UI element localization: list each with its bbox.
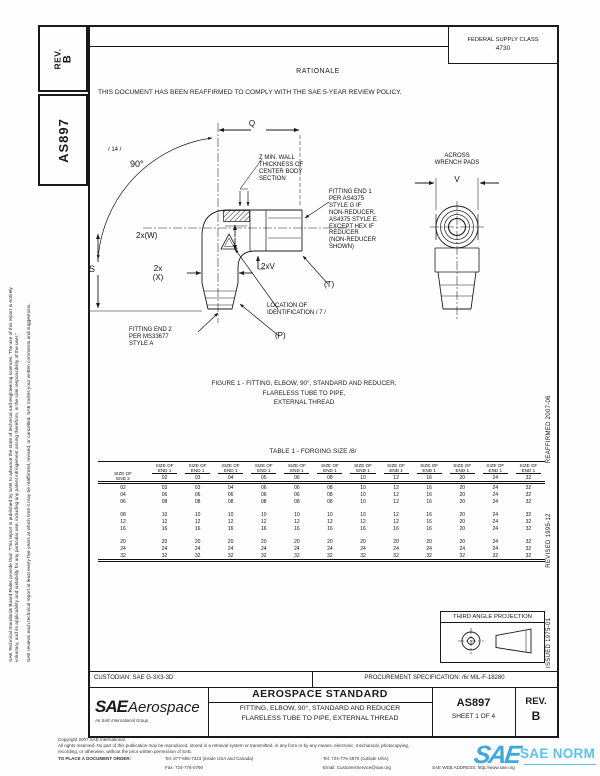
table-col-header: SIZE OFEND 112 — [380, 462, 413, 483]
forging-size-cell: 24 — [479, 545, 512, 552]
titleblock-rule-top — [88, 671, 559, 672]
forging-size-cell: 20 — [446, 498, 479, 505]
forging-size-cell: 24 — [181, 545, 214, 552]
forging-size-cell: 06 — [148, 491, 181, 498]
forging-size-cell: 24 — [148, 545, 181, 552]
forging-size-cell: 10 — [247, 511, 280, 518]
forging-size-cell: 32 — [512, 511, 545, 518]
forging-size-cell: 32 — [181, 552, 214, 561]
forging-size-cell: 08 — [214, 498, 247, 505]
forging-size-cell: 32 — [512, 552, 545, 561]
reaffirmed-date: REAFFIRMED 2007-06 — [546, 395, 552, 463]
forging-size-cell: 06 — [214, 491, 247, 498]
logo-tagline: An SAE International Group — [95, 718, 207, 723]
forging-size-cell: 12 — [380, 491, 413, 498]
forging-size-cell: 24 — [479, 483, 512, 492]
forging-size-cell: 24 — [479, 491, 512, 498]
dim-p-label: (P) — [275, 331, 286, 340]
forging-size-cell: 06 — [247, 491, 280, 498]
titleblock-rev-label: REV. — [515, 696, 557, 707]
forging-size-cell: 12 — [148, 518, 181, 525]
watermark-sae-logo: SAE — [472, 741, 521, 770]
titleblock-rev-value: B — [515, 709, 557, 723]
thread-lines — [204, 291, 236, 305]
rationale-heading: RATIONALE — [88, 68, 548, 75]
forging-size-cell: 32 — [512, 498, 545, 505]
custodian-text: CUSTODIAN: SAE G-3X3-3D — [94, 675, 173, 681]
forging-size-cell: 32 — [479, 552, 512, 561]
document-title-line2: FLARELESS TUBE TO PIPE, EXTERNAL THREAD — [208, 714, 432, 724]
forging-size-cell: 10 — [346, 498, 379, 505]
row-header-end2: 02 — [98, 483, 148, 492]
table-col-header: SIZE OFEND 105 — [247, 462, 280, 483]
dim-2xw-label: 2x(W) — [136, 231, 157, 240]
identification-note: LOCATION OF IDENTIFICATION / 7 / — [267, 303, 326, 317]
rights-line-1: All rights reserved. No part of this pub… — [58, 743, 409, 748]
forging-size-cell: 20 — [214, 538, 247, 545]
forging-size-cell: 16 — [413, 525, 446, 532]
forging-size-cell: 10 — [181, 511, 214, 518]
forging-size-cell: 08 — [313, 483, 346, 492]
row-header-end2: 04 — [98, 491, 148, 498]
sae-aerospace-logo: SAEAerospace An SAE International Group — [95, 697, 207, 723]
forging-size-cell: 10 — [148, 511, 181, 518]
forging-size-cell: 10 — [346, 491, 379, 498]
projection-label: THIRD ANGLE PROJECTION — [441, 612, 544, 623]
forging-table: SIZE OFEND 2SIZE OFEND 102SIZE OFEND 103… — [98, 461, 545, 562]
row-header-end2: 08 — [98, 511, 148, 518]
logo-aerospace-text: Aerospace — [128, 699, 200, 716]
forging-size-cell: 32 — [380, 552, 413, 561]
forging-size-cell: 16 — [313, 525, 346, 532]
forging-size-cell: 24 — [479, 525, 512, 532]
forging-size-cell: 24 — [479, 518, 512, 525]
forging-size-cell: 12 — [380, 518, 413, 525]
end-view — [415, 178, 499, 319]
email-address: Email: CustomerService@sae.org — [323, 765, 391, 770]
forging-size-cell: 03 — [181, 483, 214, 492]
forging-size-cell: 32 — [512, 545, 545, 552]
forging-size-cell: 16 — [247, 525, 280, 532]
forging-size-cell: 20 — [380, 538, 413, 545]
doc-number-box: AS897 — [38, 94, 88, 186]
table-col-header: SIZE OFEND 108 — [313, 462, 346, 483]
forging-size-cell: 06 — [247, 483, 280, 492]
row-header-end2: 32 — [98, 552, 148, 561]
forging-size-cell: 16 — [346, 525, 379, 532]
forging-size-cell: 20 — [181, 538, 214, 545]
issued-date: ISSUED 1975-01 — [546, 618, 552, 668]
table-col-header: SIZE OFEND 120 — [446, 462, 479, 483]
row-header-end2: 16 — [98, 525, 148, 532]
row-header-end2: 12 — [98, 518, 148, 525]
forging-size-cell: 16 — [280, 525, 313, 532]
forging-size-cell: 32 — [512, 491, 545, 498]
forging-size-cell: 32 — [512, 483, 545, 492]
forging-size-cell: 20 — [446, 483, 479, 492]
angle-90-label: 90° — [130, 159, 144, 169]
forging-size-cell: 10 — [346, 483, 379, 492]
forging-size-cell: 16 — [380, 525, 413, 532]
forging-size-cell: 12 — [280, 518, 313, 525]
table-row: 16161616161616161616202432 — [98, 525, 545, 532]
forging-size-cell: 20 — [446, 511, 479, 518]
procurement-spec-text: PROCUREMENT SPECIFICATION: /6/ MIL-F-182… — [312, 675, 557, 681]
figure-1-drawing — [88, 105, 548, 405]
forging-size-cell: 06 — [280, 483, 313, 492]
titleblock-doc-number: AS897 — [432, 697, 515, 709]
forging-table-body: 0203030406060810121620243204060606060608… — [98, 483, 545, 561]
document-page: SAE Technical Standards Board Rules prov… — [0, 0, 600, 776]
table-col-header: SIZE OFEND 106 — [280, 462, 313, 483]
forging-size-cell: 20 — [280, 538, 313, 545]
watermark-sae-norm: SAE NORM — [520, 746, 595, 761]
federal-supply-class-box: FEDERAL SUPPLY CLASS 4730 — [448, 25, 557, 64]
dim-2xv-label: 2xV — [261, 262, 275, 271]
document-title: FITTING, ELBOW, 90°, STANDARD AND REDUCE… — [208, 704, 432, 723]
forging-size-cell: 16 — [413, 483, 446, 492]
forging-size-cell: 16 — [148, 525, 181, 532]
forging-size-cell: 16 — [413, 518, 446, 525]
forging-size-cell: 08 — [148, 498, 181, 505]
header-rule — [88, 46, 448, 47]
wrench-pad-lines — [250, 210, 266, 251]
elbow-outer-profile — [202, 210, 302, 283]
across-wrench-pads-label: ACROSS WRENCH PADS — [417, 153, 497, 167]
legal-disclaimer-line-3: SAE reviews each technical report at lea… — [27, 162, 32, 662]
row-header-end2: 24 — [98, 545, 148, 552]
document-title-line1: FITTING, ELBOW, 90°, STANDARD AND REDUCE… — [208, 704, 432, 714]
fitting-end2-note: FITTING END 2 PER MS33677 STYLE A — [129, 327, 172, 348]
fax-number: Fax: 724-776-0790 — [165, 765, 203, 770]
forging-size-cell: 12 — [247, 518, 280, 525]
row-header-end2: 06 — [98, 498, 148, 505]
flag-note-14: / 14 / — [108, 147, 121, 154]
table-col-header: SIZE OFEND 116 — [413, 462, 446, 483]
forging-size-cell: 24 — [380, 545, 413, 552]
table-row: 06080808080808101216202432 — [98, 498, 545, 505]
forging-size-cell: 12 — [214, 518, 247, 525]
titleblock-v2 — [432, 687, 433, 736]
rationale-text: THIS DOCUMENT HAS BEEN REAFFIRMED TO COM… — [98, 89, 558, 96]
forging-size-cell: 16 — [181, 525, 214, 532]
forging-size-cell: 06 — [280, 491, 313, 498]
copyright-line: Copyright 2007 SAE International — [58, 737, 125, 742]
forging-size-cell: 32 — [148, 552, 181, 561]
forging-size-cell: 16 — [413, 511, 446, 518]
dim-s-label: S — [89, 264, 95, 274]
forging-size-cell: 08 — [313, 498, 346, 505]
forging-size-cell: 24 — [479, 538, 512, 545]
forging-size-cell: 12 — [380, 511, 413, 518]
table-row: 12121212121212121216202432 — [98, 518, 545, 525]
forging-size-cell: 08 — [280, 498, 313, 505]
forging-size-cell: 20 — [247, 538, 280, 545]
forging-size-cell: 16 — [413, 498, 446, 505]
forging-table-head: SIZE OFEND 2SIZE OFEND 102SIZE OFEND 103… — [98, 462, 545, 483]
forging-size-cell: 32 — [280, 552, 313, 561]
forging-size-cell: 24 — [413, 545, 446, 552]
forging-size-cell: 32 — [512, 538, 545, 545]
forging-size-cell: 12 — [380, 483, 413, 492]
projection-symbol — [441, 623, 543, 659]
forging-size-cell: 20 — [446, 518, 479, 525]
forging-size-cell: 12 — [380, 498, 413, 505]
rights-line-2: recording, or otherwise, without the pri… — [58, 749, 192, 754]
forging-size-cell: 12 — [313, 518, 346, 525]
forging-size-cell: 24 — [479, 511, 512, 518]
table-col-header: SIZE OFEND 110 — [346, 462, 379, 483]
table-col-header: SIZE OFEND 102 — [148, 462, 181, 483]
sheet-number: SHEET 1 OF 4 — [432, 713, 515, 720]
table-row: 32323232323232323232323232 — [98, 552, 545, 561]
table-row: 24242424242424242424242432 — [98, 545, 545, 552]
forging-size-cell: 20 — [148, 538, 181, 545]
fsc-value: 4730 — [496, 45, 510, 52]
forging-size-cell: 12 — [346, 518, 379, 525]
forging-size-cell: 10 — [280, 511, 313, 518]
forging-size-cell: 08 — [181, 498, 214, 505]
table-corner-header: SIZE OFEND 2 — [98, 462, 148, 483]
id-leader — [235, 249, 278, 309]
dim-2xx-label: 2x (X) — [146, 264, 170, 282]
forging-size-cell: 20 — [446, 538, 479, 545]
forging-size-cell: 04 — [214, 483, 247, 492]
forging-size-cell: 24 — [280, 545, 313, 552]
forging-size-cell: 20 — [446, 525, 479, 532]
tel-outside: Tel: 724-776-4970 (outside USA) — [323, 756, 389, 761]
forging-size-cell: 10 — [214, 511, 247, 518]
titleblock-rule-std — [208, 702, 432, 703]
z-wall-note: Z MIN. WALL THICKNESS OF CENTER BODY SEC… — [259, 155, 303, 183]
dim-q-label: Q — [244, 119, 260, 128]
forging-size-cell: 20 — [446, 491, 479, 498]
forging-size-cell: 32 — [346, 552, 379, 561]
fsc-label: FEDERAL SUPPLY CLASS — [467, 37, 538, 43]
forging-size-cell: 08 — [247, 498, 280, 505]
forging-size-cell: 32 — [512, 525, 545, 532]
revised-date: REVISED 1995-12 — [546, 513, 552, 568]
forging-size-cell: 24 — [446, 545, 479, 552]
forging-size-cell: 32 — [446, 552, 479, 561]
forging-size-cell: 10 — [346, 511, 379, 518]
forging-size-cell: 06 — [181, 491, 214, 498]
forging-size-cell: 16 — [413, 491, 446, 498]
forging-size-cell: 10 — [313, 511, 346, 518]
forging-size-cell: 32 — [247, 552, 280, 561]
legal-disclaimer-line-1: SAE Technical Standards Board Rules prov… — [9, 162, 14, 662]
forging-size-cell: 16 — [214, 525, 247, 532]
forging-size-cell: 24 — [313, 545, 346, 552]
doc-number-vertical: AS897 — [56, 118, 71, 163]
table-row: 08101010101010101216202432 — [98, 511, 545, 518]
fitting-end1-note: FITTING END 1 PER AS4375 STYLE G IF NON-… — [329, 189, 377, 251]
table-col-header: SIZE OFEND 124 — [479, 462, 512, 483]
forging-size-cell: 12 — [181, 518, 214, 525]
angle-arc — [98, 138, 212, 259]
forging-size-cell: 32 — [313, 552, 346, 561]
forging-size-cell: 32 — [512, 518, 545, 525]
figure-caption: FIGURE 1 - FITTING, ELBOW, 90°, STANDARD… — [88, 379, 520, 408]
end1-leader — [305, 202, 329, 218]
forging-size-cell: 24 — [479, 498, 512, 505]
order-label: TO PLACE A DOCUMENT ORDER: — [58, 756, 131, 761]
revision-box: REV. B — [38, 25, 88, 92]
legal-disclaimer-line-2: voluntary, and its applicability and sui… — [15, 162, 20, 662]
table-row: 20202020202020202020202432 — [98, 538, 545, 545]
forging-size-cell: 03 — [148, 483, 181, 492]
dim-t-label: (T) — [324, 280, 334, 289]
forging-size-cell: 24 — [247, 545, 280, 552]
table-row: 02030304060608101216202432 — [98, 483, 545, 492]
logo-sae-text: SAE — [95, 697, 127, 716]
forging-size-cell: 20 — [313, 538, 346, 545]
forging-size-cell: 32 — [214, 552, 247, 561]
table-title: TABLE 1 - FORGING SIZE /8/ — [88, 448, 538, 455]
table-col-header: SIZE OFEND 103 — [181, 462, 214, 483]
table-col-header: SIZE OFEND 104 — [214, 462, 247, 483]
forging-size-cell: 24 — [346, 545, 379, 552]
table-col-header: SIZE OFEND 132 — [512, 462, 545, 483]
table-row: 04060606060608101216202432 — [98, 491, 545, 498]
rev-value: B — [62, 54, 74, 62]
forging-size-cell: 24 — [214, 545, 247, 552]
end2-leader — [198, 313, 218, 332]
row-header-end2: 20 — [98, 538, 148, 545]
watermark-rule — [524, 764, 596, 765]
third-angle-projection-box: THIRD ANGLE PROJECTION — [440, 611, 545, 663]
standard-type-heading: AEROSPACE STANDARD — [208, 688, 432, 700]
section-hatch — [224, 211, 250, 222]
dim-v-label: V — [451, 175, 463, 184]
tel-inside: Tel: 877-606-7323 (inside USA and Canada… — [165, 756, 253, 761]
forging-size-cell: 08 — [313, 491, 346, 498]
forging-size-cell: 20 — [346, 538, 379, 545]
forging-size-cell: 32 — [413, 552, 446, 561]
forging-size-cell: 20 — [413, 538, 446, 545]
